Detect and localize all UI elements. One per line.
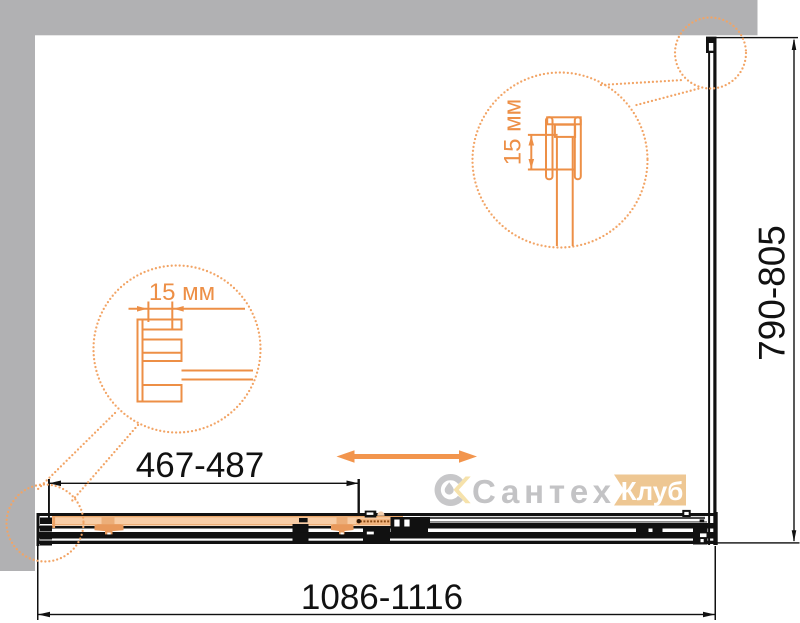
svg-text:15 мм: 15 мм [149,279,215,306]
svg-text:1086-1116: 1086-1116 [301,578,463,617]
svg-text:Сантех: Сантех [472,473,616,510]
svg-text:Клуб: Клуб [621,476,684,506]
svg-text:15 мм: 15 мм [499,99,526,165]
svg-text:790-805: 790-805 [751,225,792,361]
svg-text:467-487: 467-487 [136,446,264,485]
